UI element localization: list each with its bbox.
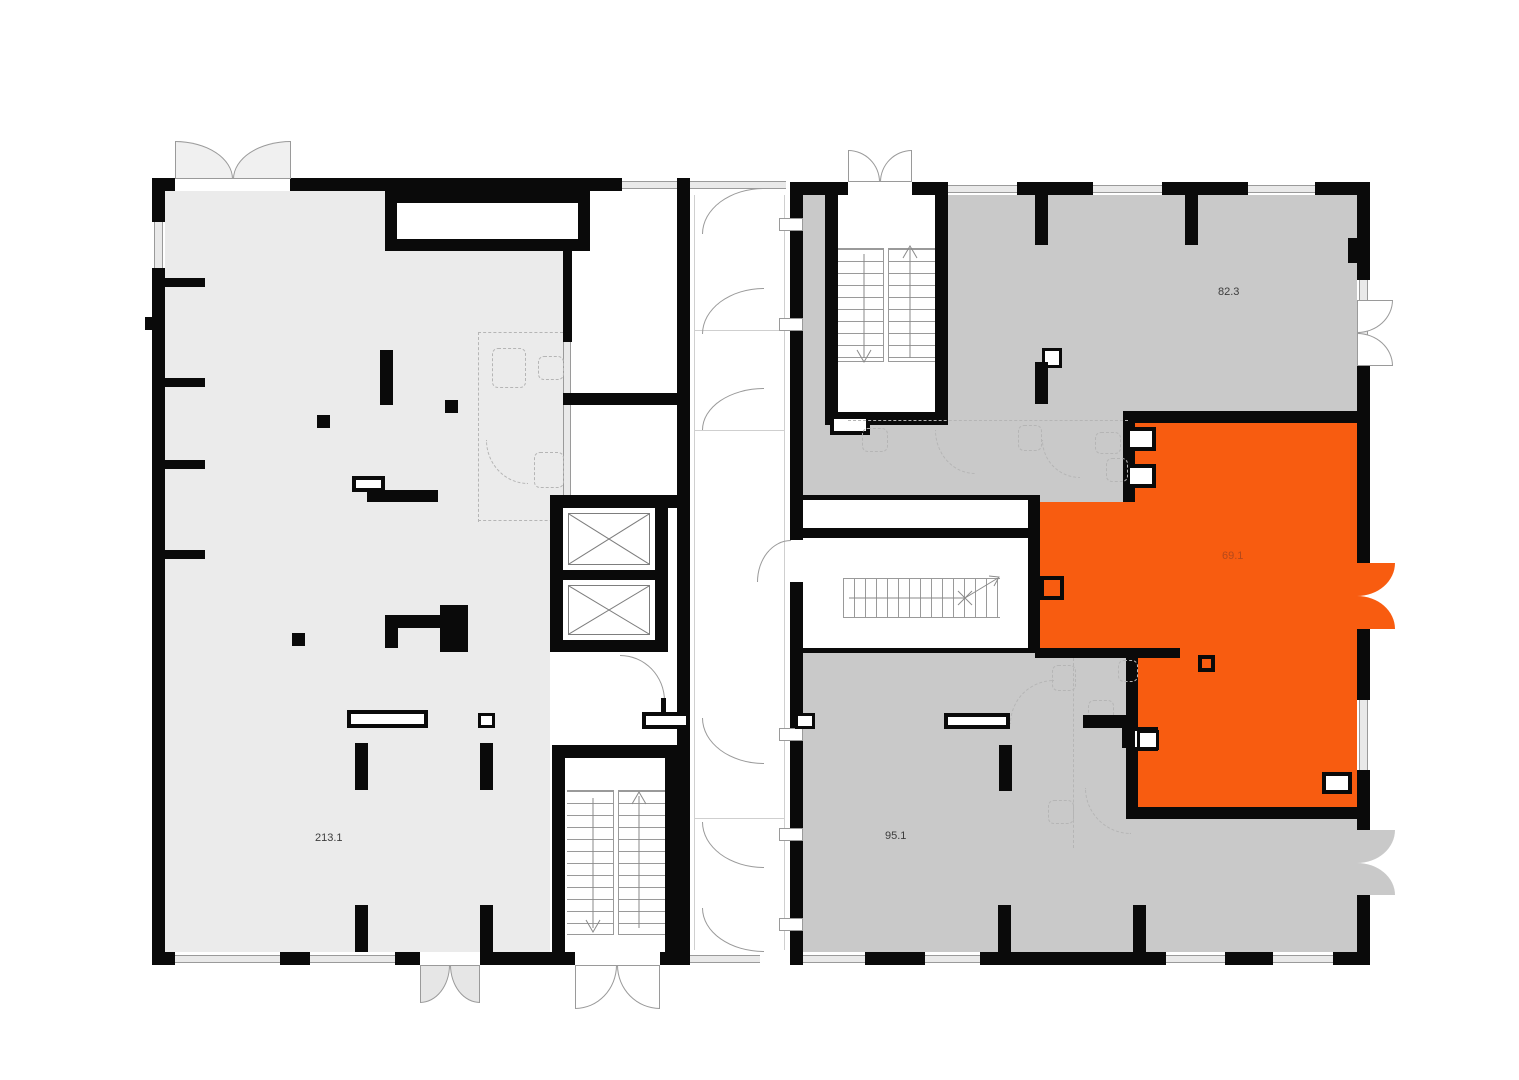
column [1035,362,1048,404]
wall [152,178,165,222]
door-swing [702,288,764,334]
toilet-fixture [862,428,888,452]
door-sill [779,828,803,841]
window [175,955,280,963]
elevator [563,508,655,570]
floor-plan: 213.1 82.3 69.1 95.1 [0,0,1519,1080]
counter [944,713,1010,729]
entrance-door-fan [848,150,880,182]
wall [1225,952,1273,965]
interior-wall [563,250,572,342]
glazed-wall-line [694,430,784,431]
window [1359,700,1368,770]
threshold [642,712,690,729]
door-fan [1357,563,1395,596]
column [480,743,493,790]
exit-door-fan [450,965,480,1003]
column [1035,195,1048,245]
door-sill [779,318,803,331]
wall [935,182,948,425]
column [999,745,1012,791]
wall [1017,182,1093,195]
unit-label-69-1: 69.1 [1222,550,1243,562]
column [480,905,493,952]
window [1093,185,1162,193]
door-swing [702,388,764,430]
unit-label-82-3: 82.3 [1218,286,1239,298]
partition-line [478,332,563,333]
wall [825,195,838,425]
wall-pilaster [145,317,152,330]
unit-area-69-1[interactable] [1135,423,1357,503]
wall [280,952,310,965]
window [1248,185,1315,193]
window [925,955,980,963]
toilet-fixture [1052,665,1076,691]
wall [1035,648,1138,658]
partition-line [848,420,1128,421]
threshold [795,713,815,729]
duct-box [478,713,495,728]
stair-direction-arrows [567,788,665,938]
wall [1357,350,1370,563]
wall-stub [165,378,205,387]
interior-wall [385,615,440,628]
door-sill [779,218,803,231]
window [622,181,682,189]
elevator-cab-outline [568,585,650,635]
elevator-cab-outline [568,513,650,565]
column [1133,905,1146,952]
threshold [1126,427,1156,451]
window [310,955,395,963]
wall [290,178,622,191]
entrance-door-fan [233,141,291,179]
glazed-partition [563,340,571,395]
window [690,955,760,963]
wall [790,495,1040,500]
wall [665,745,678,965]
door-sill [779,918,803,931]
threshold [1137,730,1159,750]
column [1198,655,1215,672]
column [317,415,330,428]
wall [865,952,925,965]
wall [790,182,803,540]
sink-fixture [1095,432,1121,454]
entrance-door-fan [175,141,233,179]
exit-door-fan [420,965,450,1003]
unit-area-213-1[interactable] [165,191,563,952]
elevator-x-icon [569,514,649,564]
toilet-fixture [1018,425,1042,451]
wall [1333,952,1370,965]
elevator [563,580,655,640]
wall-notch [1348,238,1357,263]
window [803,955,865,963]
door-swing [702,908,764,952]
wall [395,952,420,965]
toilet-fixture [492,348,526,388]
door-swing [702,718,764,764]
vestibule-room [385,191,590,251]
wall-stub [165,460,205,469]
interior-wall [1083,715,1135,728]
glazed-wall-line [694,195,695,950]
sink-fixture [1106,458,1128,482]
unit-label-213-1: 213.1 [315,832,343,844]
column [1185,195,1198,245]
column [998,905,1011,952]
door-fan [1357,830,1395,863]
wall [152,268,165,958]
wall-stub [165,550,205,559]
unit-label-95-1: 95.1 [885,830,906,842]
door-fan [1357,596,1395,629]
wall [677,178,690,965]
duct-box [347,710,428,728]
window [1273,955,1333,963]
unit-area-69-1[interactable] [1040,502,1357,648]
glazed-wall-line [694,818,784,819]
door-fan [1357,333,1393,366]
wall [790,582,803,965]
door-fan [1357,863,1395,895]
window [1166,955,1225,963]
column [355,743,368,790]
door-swing [757,540,791,582]
threshold [1126,464,1156,488]
wall [803,528,1028,538]
partition-line [478,332,479,522]
sink-fixture [1118,660,1138,682]
wall [1357,182,1370,280]
stair-direction-arrow [843,570,1008,626]
toilet-fixture [534,452,564,488]
column [385,628,398,648]
door-swing [702,188,764,234]
wall [552,745,565,965]
interior-wall [1122,728,1135,748]
sink-fixture [538,356,564,380]
door-fan [617,965,660,1009]
elevator-x-icon [569,586,649,634]
entrance-door-fan [880,150,912,182]
wall [1357,770,1370,830]
wall [980,952,1166,965]
wall [790,952,803,965]
door-fan [575,965,617,1009]
wall-stub [165,278,205,287]
column [292,633,305,646]
threshold [1040,576,1064,600]
interior-wall [367,490,438,502]
column [440,605,468,652]
wall [152,952,175,965]
wall-stub [1138,648,1180,658]
window [948,185,1017,193]
wall [552,745,678,758]
column [355,905,368,952]
wall [550,640,668,652]
wall [790,648,1040,653]
wall [1123,411,1135,502]
door-swing [702,822,764,868]
interior-wall [563,393,677,405]
wall [1126,807,1357,819]
column [445,400,458,413]
window [154,222,163,268]
stair-direction-arrows [838,242,935,368]
glazed-partition [563,405,571,495]
wall [1357,628,1370,700]
duct-box [1322,772,1352,794]
wall [1128,411,1357,423]
wall [550,570,668,580]
wall [1028,495,1040,653]
wall [1162,182,1248,195]
door-sill [779,728,803,741]
column [380,350,393,405]
door-fan [1357,300,1393,333]
toilet-fixture [1048,800,1074,824]
window [690,181,786,189]
